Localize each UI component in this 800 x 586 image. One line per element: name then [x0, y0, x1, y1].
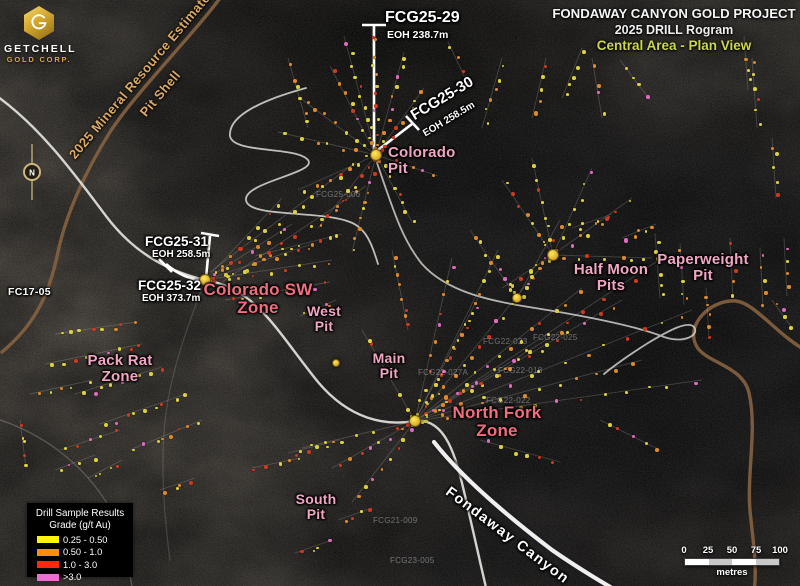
scale-tick: 100: [772, 545, 788, 556]
scale-bar-segments: [684, 558, 780, 566]
area-label-north-fork-zone: North Fork Zone: [453, 404, 542, 441]
scale-segment: [709, 559, 733, 565]
hole-callout-fcg25-29: FCG25-29: [385, 9, 460, 27]
company-logo: GETCHELL GOLD CORP.: [4, 6, 74, 64]
legend-item: 1.0 - 3.0: [37, 560, 133, 570]
faint-hole-id: FCG22-025: [533, 333, 578, 342]
drill-collar: [547, 249, 559, 261]
legend-title-line1: Drill Sample Results: [27, 508, 133, 520]
faint-hole-id: FCG22-018: [498, 366, 543, 375]
drill-collar: [409, 415, 421, 427]
drill-collar: [370, 149, 382, 161]
legend-item-label: >3.0: [63, 572, 81, 582]
scale-bar: 0255075100 metres: [684, 545, 780, 578]
area-label-main-pit: Main Pit: [373, 351, 406, 381]
scale-tick: 0: [681, 545, 686, 556]
company-division: GOLD CORP.: [4, 55, 74, 64]
faint-hole-id: FCG21-009: [373, 516, 418, 525]
area-label-south-pit: South Pit: [296, 492, 337, 522]
legend-item: 0.50 - 1.0: [37, 547, 133, 557]
hole-callout-fcg25-31: FCG25-31: [145, 234, 208, 249]
hole-label-fc17-05: FC17-05: [8, 286, 51, 298]
logo-g-icon: [29, 13, 49, 33]
drill-collar: [512, 293, 522, 303]
map-title-block: FONDAWAY CANYON GOLD PROJECT 2025 DRILL …: [552, 6, 796, 55]
legend-item-label: 0.50 - 1.0: [63, 547, 102, 557]
faint-hole-id: FCG22-023: [483, 337, 528, 346]
scale-segment: [685, 559, 709, 565]
legend: Drill Sample Results Grade (g/t Au) 0.25…: [27, 503, 133, 577]
legend-item-label: 1.0 - 3.0: [63, 560, 97, 570]
legend-swatch: [37, 549, 59, 556]
legend-swatch: [37, 536, 59, 543]
area-label-half-moon-pits: Half Moon Pits: [574, 262, 648, 294]
legend-title-line2: Grade (g/t Au): [27, 520, 133, 532]
area-label-pack-rat-zone: Pack Rat Zone: [88, 353, 153, 385]
logo-hexagon-icon: [24, 6, 54, 40]
scale-tick: 75: [751, 545, 762, 556]
legend-item: >3.0: [37, 572, 133, 582]
area-label-colorado-pit: Colorado Pit: [388, 145, 455, 177]
scale-bar-unit: metres: [684, 567, 780, 578]
faint-hole-id: FCG22-027A: [418, 368, 468, 377]
scale-segment: [756, 559, 780, 565]
area-label-paperweight-pit: Paperweight Pit: [657, 252, 748, 284]
hole-eoh-fcg25-31: EOH 258.5m: [152, 249, 210, 260]
area-label-colorado-sw-zone: Colorado SW Zone: [204, 281, 313, 318]
view-subtitle: Central Area - Plan View: [552, 38, 796, 55]
company-name: GETCHELL: [4, 43, 74, 55]
legend-item: 0.25 - 0.50: [37, 535, 133, 545]
legend-swatch: [37, 574, 59, 581]
map-canvas: N FCG22-018FCG22-022FCG22-027AFCG22-023F…: [0, 0, 800, 586]
area-label-west-pit: West Pit: [307, 304, 341, 334]
faint-hole-id: FCG25-006: [316, 190, 361, 199]
hole-eoh-fcg25-29: EOH 238.7m: [387, 29, 448, 41]
scale-segment: [732, 559, 756, 565]
project-title: FONDAWAY CANYON GOLD PROJECT: [552, 6, 796, 23]
legend-item-label: 0.25 - 0.50: [63, 535, 107, 545]
hole-eoh-fcg25-32: EOH 373.7m: [142, 293, 200, 304]
hole-callout-fcg25-32: FCG25-32: [138, 278, 201, 293]
drill-collar: [332, 359, 340, 367]
legend-swatch: [37, 561, 59, 568]
faint-hole-id: FCG23-005: [390, 556, 435, 565]
scale-tick: 50: [727, 545, 738, 556]
scale-tick: 25: [703, 545, 714, 556]
program-subtitle: 2025 DRILL Rogram: [552, 23, 796, 39]
